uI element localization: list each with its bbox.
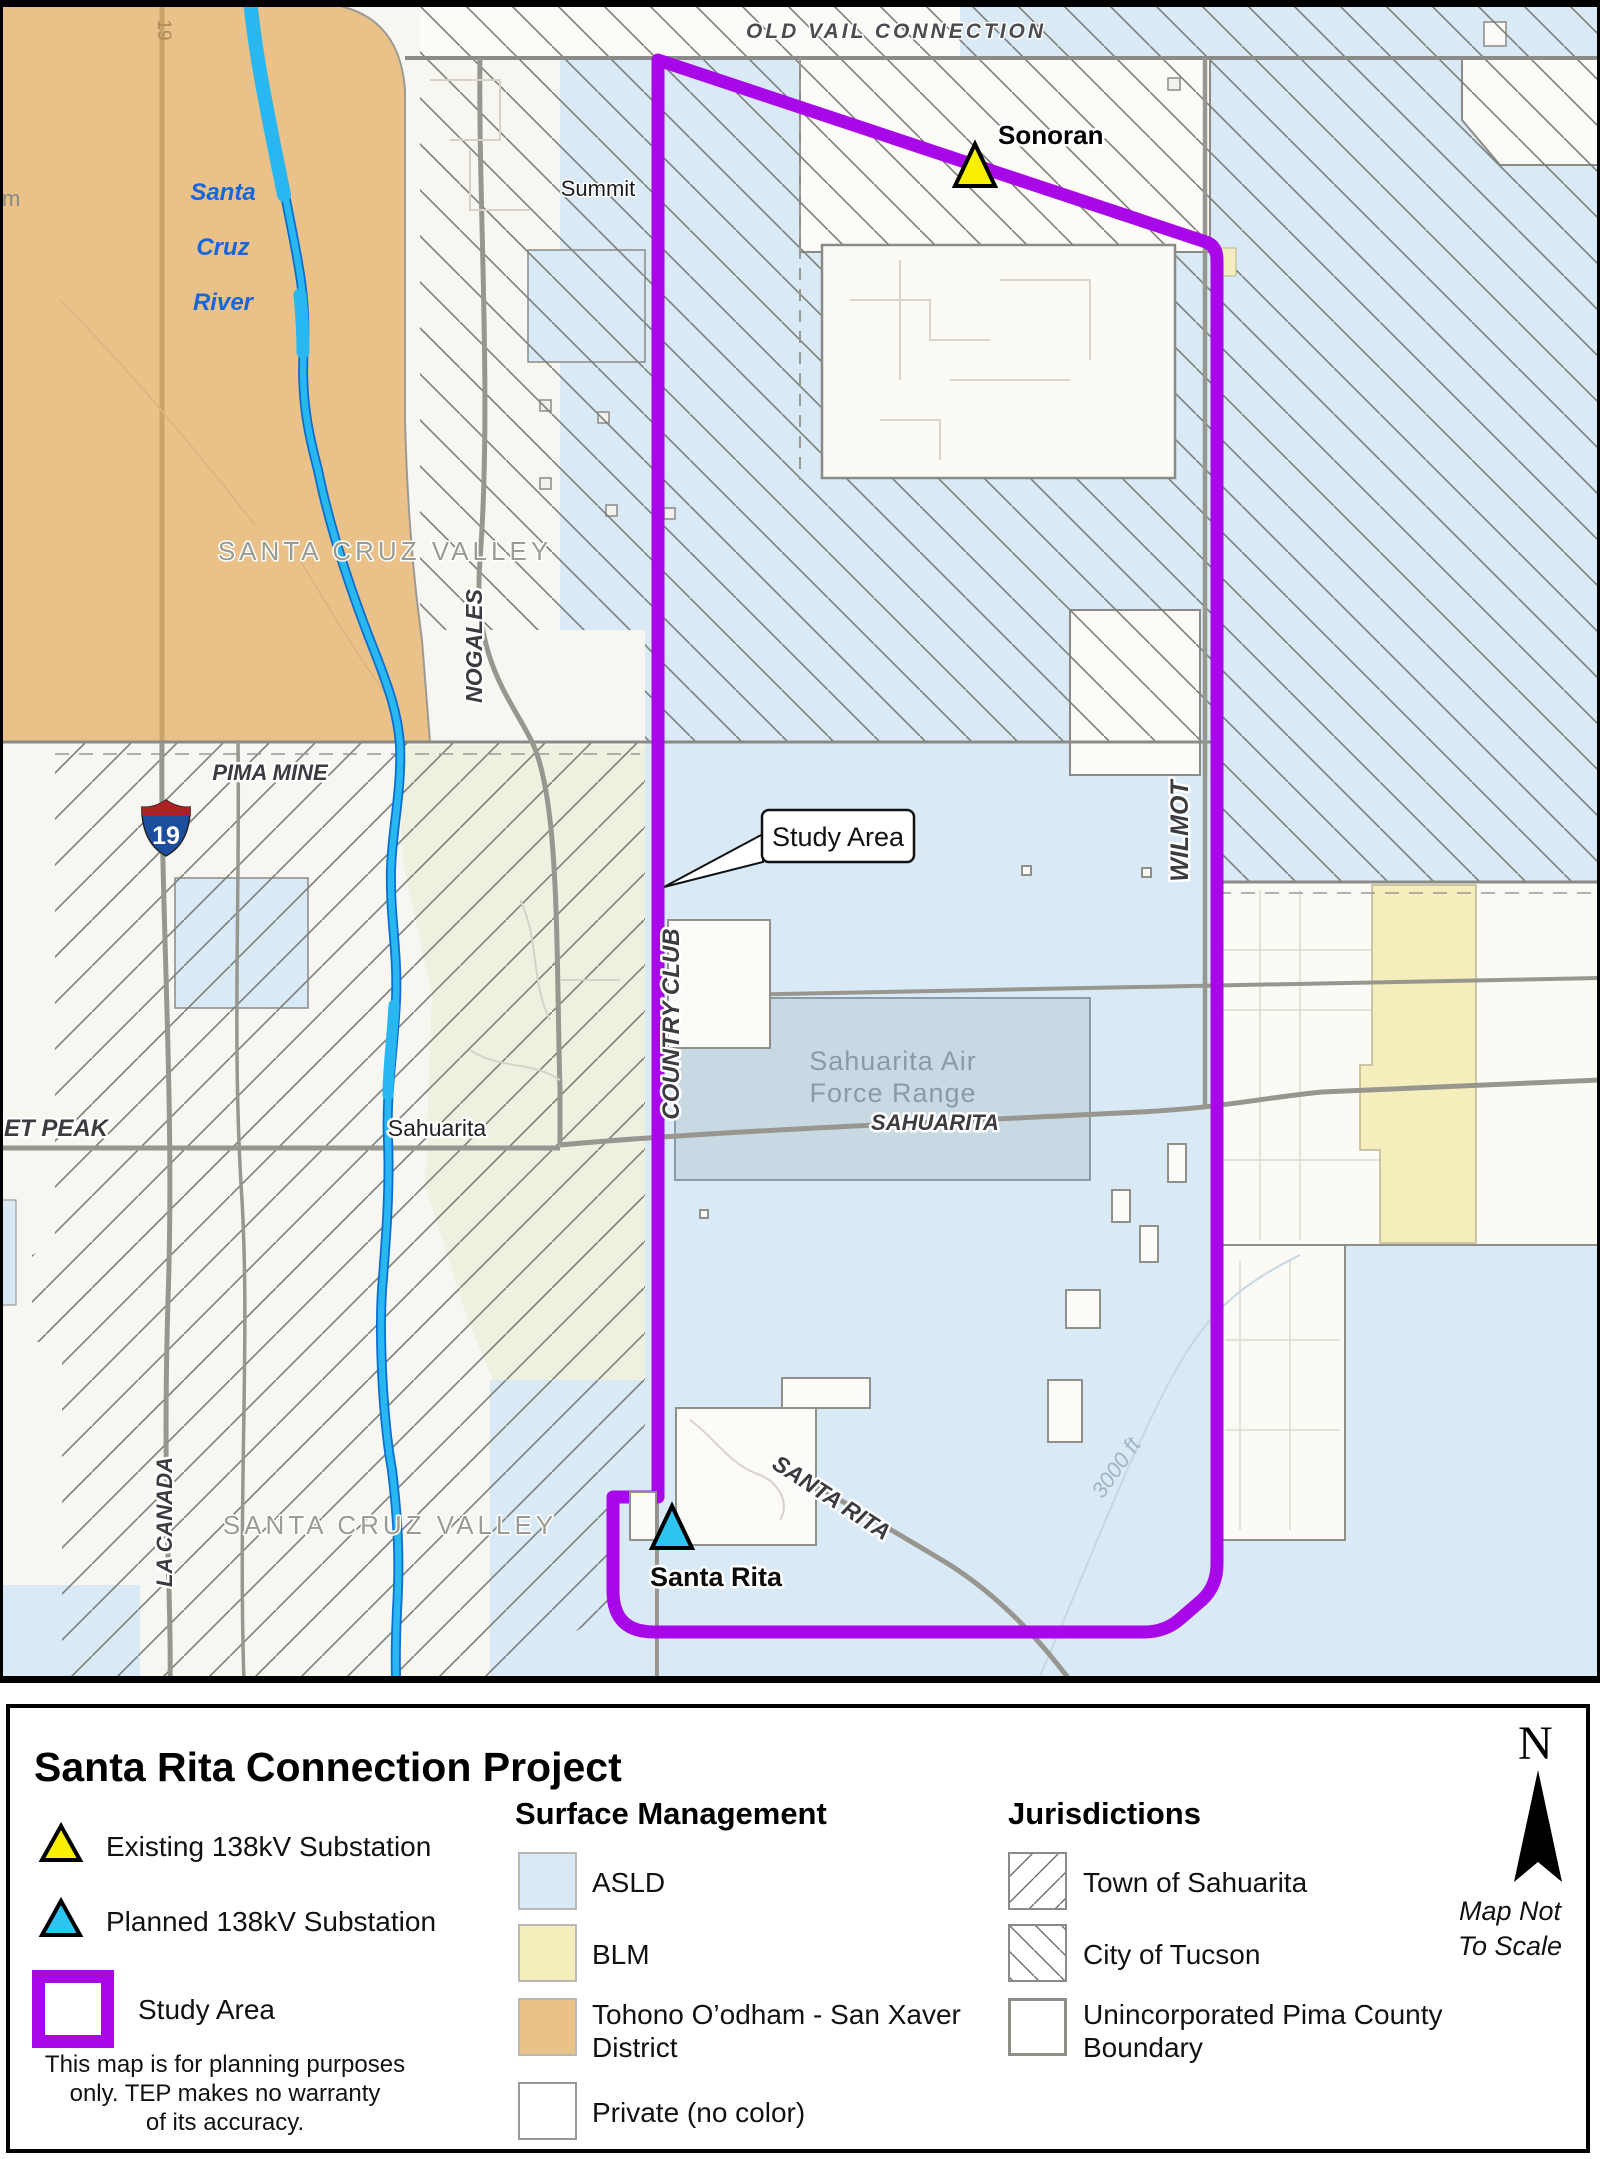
city-of-tucson-swatch xyxy=(1008,1924,1067,1982)
map-not-to-scale-note: Map Not To Scale xyxy=(1430,1894,1590,1964)
sahuarita-road-label: SAHUARITA xyxy=(871,1110,999,1135)
surface-management-heading: Surface Management xyxy=(515,1796,827,1832)
asld-swatch xyxy=(518,1852,577,1910)
asld-label: ASLD xyxy=(592,1866,665,1899)
study-area-label: Study Area xyxy=(138,1993,275,2026)
page: Study Area 19 OLD VAIL CONNECTION Summit… xyxy=(0,0,1600,2159)
river-label: Santa Cruz River xyxy=(190,179,255,316)
summit-label: Summit xyxy=(561,176,636,201)
sonoran-label: Sonoran xyxy=(998,120,1103,150)
valley-upper-label: SANTA CRUZ VALLEY xyxy=(218,536,552,566)
planned-substation-icon xyxy=(38,1897,84,1939)
scale-note-line1: Map Not xyxy=(1430,1894,1590,1929)
helmet-peak-label: ET PEAK xyxy=(4,1115,110,1142)
private-swatch xyxy=(518,2082,577,2140)
valley-lower-label: SANTA CRUZ VALLEY xyxy=(223,1510,557,1540)
santa-rita-sub-label: Santa Rita xyxy=(650,1562,783,1592)
north-letter: N xyxy=(1518,1716,1553,1771)
edge-fragment: m xyxy=(2,186,20,211)
legend-panel: Santa Rita Connection Project Existing 1… xyxy=(6,1704,1590,2153)
city-of-tucson-label: City of Tucson xyxy=(1083,1938,1260,1971)
old-vail-label: OLD VAIL CONNECTION xyxy=(746,20,1046,43)
town-of-sahuarita-label: Town of Sahuarita xyxy=(1083,1866,1307,1899)
i19-road-tag: 19 xyxy=(153,19,174,40)
unincorporated-swatch xyxy=(1008,1998,1067,2056)
blm-swatch xyxy=(518,1924,577,1982)
disclaimer-line1: This map is for planning purposes xyxy=(20,2050,430,2079)
nogales-label: NOGALES xyxy=(461,588,487,702)
private-label: Private (no color) xyxy=(592,2096,805,2129)
pima-mine-label: PIMA MINE xyxy=(212,760,329,785)
map-canvas: Study Area 19 OLD VAIL CONNECTION Summit… xyxy=(0,0,1600,1683)
planned-substation-label: Planned 138kV Substation xyxy=(106,1905,436,1938)
scale-note-line2: To Scale xyxy=(1430,1929,1590,1964)
interstate-19-number: 19 xyxy=(152,822,180,850)
svg-text:Force Range: Force Range xyxy=(809,1078,976,1108)
svg-text:Santa: Santa xyxy=(190,179,255,206)
svg-text:Sahuarita Air: Sahuarita Air xyxy=(809,1046,977,1076)
country-club-label: COUNTRY CLUB xyxy=(658,928,685,1119)
la-canada-label: LA CANADA xyxy=(152,1457,177,1587)
north-arrow-icon xyxy=(1506,1768,1570,1888)
blm-label: BLM xyxy=(592,1938,650,1971)
jurisdictions-heading: Jurisdictions xyxy=(1008,1796,1201,1832)
study-area-callout-label: Study Area xyxy=(772,822,905,852)
urban-block-north xyxy=(822,245,1175,478)
tohono-label: Tohono O’odham - San Xaver District xyxy=(592,1998,964,2064)
legend-title: Santa Rita Connection Project xyxy=(34,1744,622,1791)
svg-text:Cruz: Cruz xyxy=(196,234,249,261)
existing-substation-icon xyxy=(38,1822,84,1864)
sahuarita-town-label: Sahuarita xyxy=(388,1115,487,1141)
disclaimer-line2: only. TEP makes no warranty xyxy=(20,2079,430,2108)
town-of-sahuarita-swatch xyxy=(1008,1852,1067,1910)
unincorporated-label: Unincorporated Pima County Boundary xyxy=(1083,1998,1473,2064)
disclaimer-line3: of its accuracy. xyxy=(20,2108,430,2137)
svg-text:River: River xyxy=(193,289,255,316)
disclaimer: This map is for planning purposes only. … xyxy=(20,2050,430,2137)
study-area-icon xyxy=(32,1970,114,2048)
tohono-swatch xyxy=(518,1998,577,2056)
existing-substation-label: Existing 138kV Substation xyxy=(106,1830,431,1863)
wilmot-label: WILMOT xyxy=(1166,778,1194,882)
